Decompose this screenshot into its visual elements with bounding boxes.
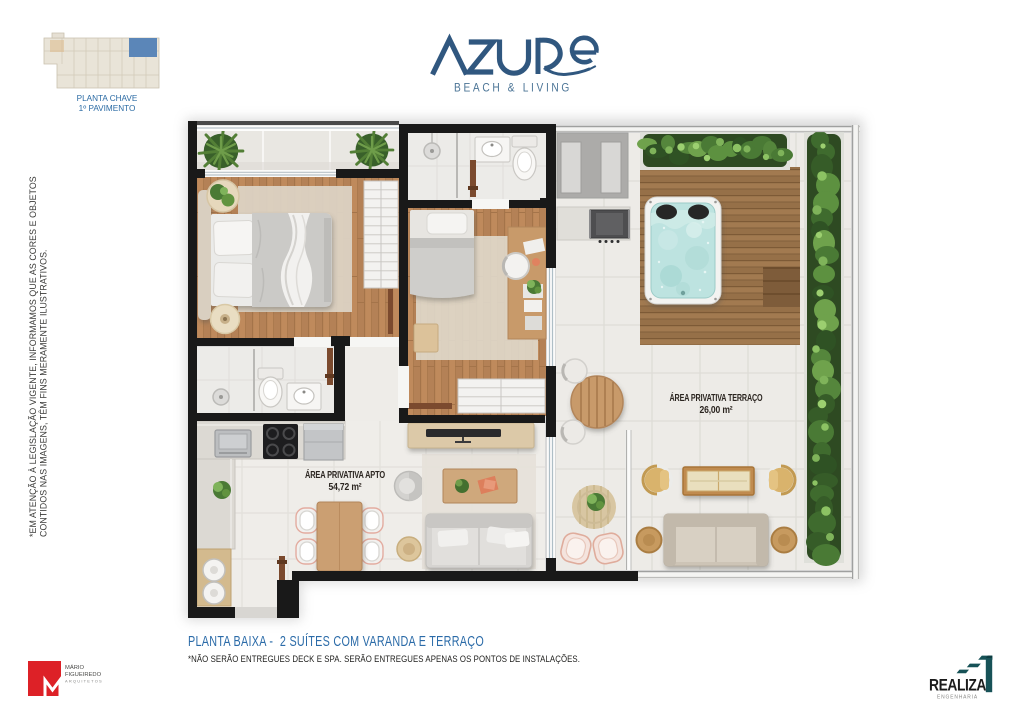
svg-text:ENGENHARIA: ENGENHARIA <box>937 695 978 701</box>
svg-text:MÁRIO: MÁRIO <box>65 664 84 671</box>
svg-text:CONTIDOS NAS IMAGENS, TÊM FINS: CONTIDOS NAS IMAGENS, TÊM FINS MERAMENTE… <box>39 249 49 537</box>
svg-text:PLANTA CHAVE: PLANTA CHAVE <box>77 94 138 103</box>
svg-text:54,72 m²: 54,72 m² <box>329 481 363 493</box>
svg-text:REALIZA: REALIZA <box>929 677 986 695</box>
svg-text:1º PAVIMENTO: 1º PAVIMENTO <box>79 104 136 113</box>
svg-text:ARQUITETOS: ARQUITETOS <box>65 679 103 684</box>
svg-text:ÁREA PRIVATIVA TERRAÇO: ÁREA PRIVATIVA TERRAÇO <box>670 391 763 404</box>
svg-text:*EM ATENÇÃO À LEGISLAÇÃO VIGEN: *EM ATENÇÃO À LEGISLAÇÃO VIGENTE, INFORM… <box>28 176 38 537</box>
svg-text:PLANTA BAIXA - 2 SUÍTES COM V: PLANTA BAIXA - 2 SUÍTES COM VARANDA E TE… <box>188 633 484 650</box>
svg-text:ÁREA PRIVATIVA APTO: ÁREA PRIVATIVA APTO <box>305 468 385 481</box>
svg-text:BEACH & LIVING: BEACH & LIVING <box>454 83 572 95</box>
svg-text:26,00 m²: 26,00 m² <box>700 404 734 416</box>
svg-text:FIGUEIREDO: FIGUEIREDO <box>65 672 102 678</box>
svg-text:*NÃO SERÃO ENTREGUES DECK E SP: *NÃO SERÃO ENTREGUES DECK E SPA. SERÃO E… <box>188 654 580 665</box>
